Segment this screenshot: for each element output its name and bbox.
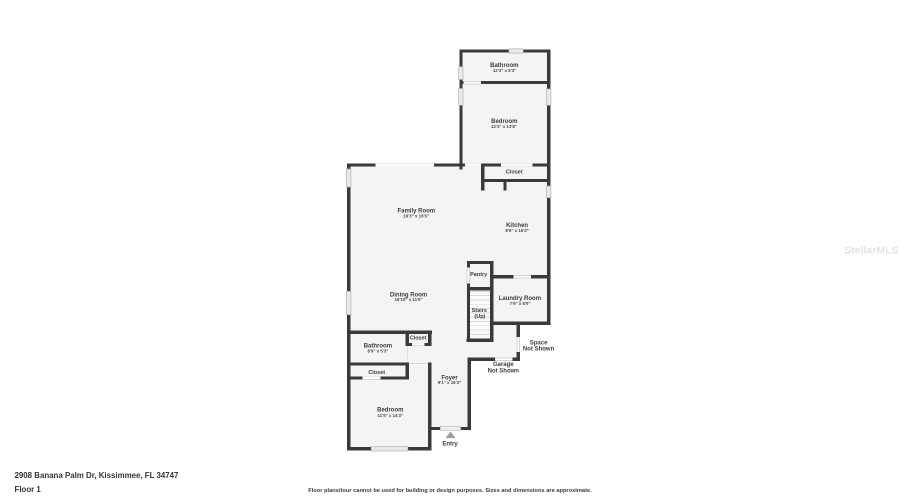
svg-text:Closet: Closet bbox=[506, 169, 523, 175]
svg-text:Closet: Closet bbox=[368, 370, 385, 376]
svg-text:8'9" x 16'3": 8'9" x 16'3" bbox=[505, 228, 528, 233]
svg-text:Pantry: Pantry bbox=[470, 272, 488, 278]
svg-text:11'5" x 14'3": 11'5" x 14'3" bbox=[378, 413, 404, 418]
svg-text:7'9" x 8'9": 7'9" x 8'9" bbox=[510, 301, 531, 306]
svg-text:12'3" x 5'3": 12'3" x 5'3" bbox=[493, 68, 516, 73]
svg-text:Not Shown: Not Shown bbox=[488, 368, 520, 374]
svg-text:Closet: Closet bbox=[410, 335, 427, 341]
svg-text:9'1" x 16'3": 9'1" x 16'3" bbox=[438, 380, 461, 385]
svg-text:(Up): (Up) bbox=[474, 314, 485, 320]
svg-text:19'3" x 16'5": 19'3" x 16'5" bbox=[403, 214, 429, 219]
svg-text:Not Shown: Not Shown bbox=[523, 347, 555, 353]
svg-text:Stairs: Stairs bbox=[472, 308, 487, 314]
svg-text:16'10" x 11'9": 16'10" x 11'9" bbox=[395, 297, 423, 302]
svg-text:Garage: Garage bbox=[493, 362, 514, 368]
svg-text:Space: Space bbox=[530, 340, 548, 346]
svg-text:12'3" x 13'8": 12'3" x 13'8" bbox=[491, 124, 517, 129]
svg-text:StellarMLS: StellarMLS bbox=[844, 245, 898, 257]
svg-text:8'9" x 5'3": 8'9" x 5'3" bbox=[367, 349, 388, 354]
svg-text:Entry: Entry bbox=[442, 442, 458, 448]
